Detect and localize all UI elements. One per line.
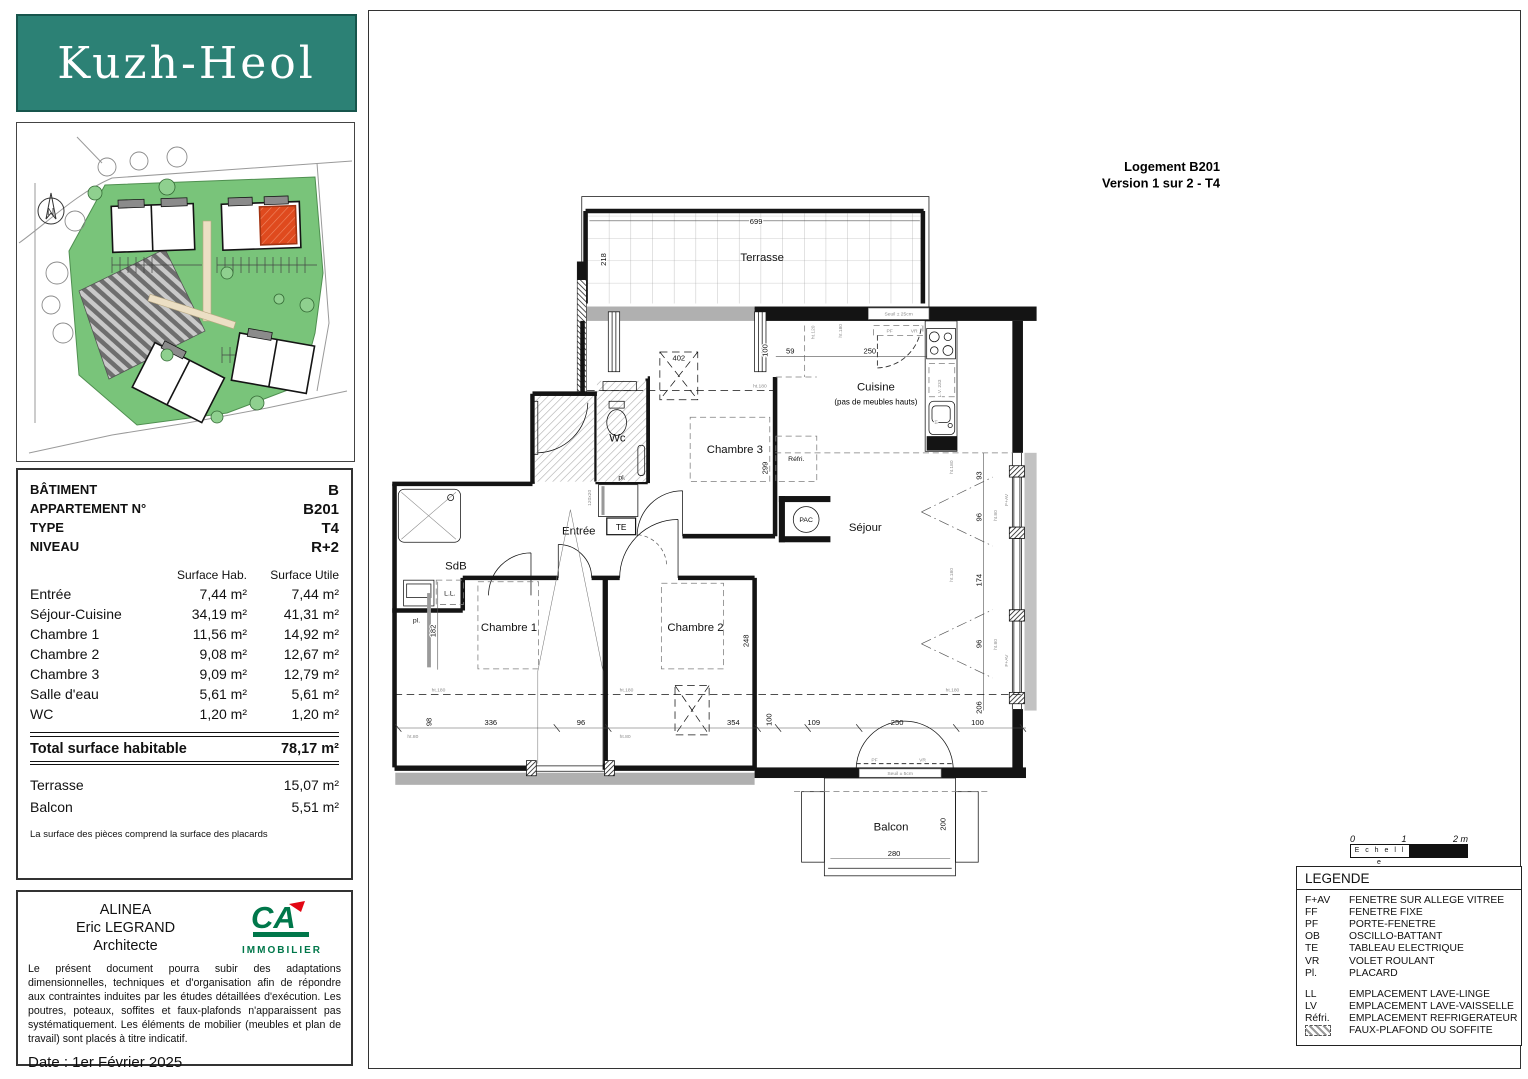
svg-text:ht.80: ht.80: [407, 734, 418, 740]
surface-row: Chambre 39,09 m²12,79 m²: [30, 666, 339, 682]
exterior-band: [1024, 453, 1036, 711]
room-label-chambre1: Chambre 1: [481, 622, 537, 634]
surface-row: Chambre 29,08 m²12,67 m²: [30, 646, 339, 662]
surface-row: Entrée7,44 m²7,44 m²: [30, 586, 339, 602]
dim-b100a: 100: [764, 713, 773, 726]
site-unit-highlight: [259, 206, 296, 245]
svg-text:F+AV: F+AV: [1004, 493, 1010, 506]
scale-bar: 0 1 2 m E c h e l l e: [1350, 834, 1468, 858]
legend-item: Pl.PLACARD: [1297, 967, 1521, 979]
annex-row: Balcon5,51 m²: [30, 799, 339, 815]
refri-label: Réfri.: [788, 456, 804, 463]
dim-182: 182: [428, 625, 437, 638]
dim-terrasse-depth: 218: [599, 253, 608, 266]
site-building-1: [111, 198, 195, 253]
dim-ch3-depth: 299: [760, 462, 769, 475]
svg-text:ht.120: ht.120: [810, 325, 816, 339]
disclaimer-text: Le présent document pourra subir des ada…: [28, 963, 341, 1047]
sheet-subtitle: Version 1 sur 2 - T4: [1102, 176, 1221, 191]
dim-right-93: 93: [974, 471, 983, 479]
surface-header: Surface Hab. Surface Utile: [30, 568, 339, 582]
ll-label: L.L.: [444, 590, 455, 597]
site-plan-drawing: N: [17, 123, 352, 459]
site-building-2-highlight: [221, 196, 301, 251]
dim-ch2-248: 248: [742, 634, 751, 647]
dim-right-96b: 96: [974, 640, 983, 648]
dim-right-174: 174: [974, 574, 983, 587]
legend-item: TETABLEAU ELECTRIQUE: [1297, 942, 1521, 954]
total-surface-row: Total surface habitable 78,17 m²: [30, 741, 339, 757]
room-label-sejour: Séjour: [849, 522, 882, 534]
dim-terrasse-width: 699: [750, 217, 763, 226]
lv-label: L.V. 233: [937, 379, 943, 397]
room-label-balcon: Balcon: [874, 821, 909, 833]
plan-date: Date : 1er Février 2025: [28, 1054, 341, 1071]
pac-label: PAC: [799, 517, 813, 524]
placard-label: pl.: [618, 474, 625, 481]
site-plan: N: [16, 122, 355, 462]
seuil-terrasse-note: Seuil ± 25cm: [884, 312, 912, 318]
legend-item: F+AVFENETRE SUR ALLEGE VITREE: [1297, 894, 1521, 906]
legend-item: OBOSCILLO-BATTANT: [1297, 930, 1521, 942]
dim-balcon-depth: 200: [939, 818, 948, 831]
placard-label-2: pl.: [413, 618, 420, 625]
svg-text:ht.180: ht.180: [949, 460, 955, 474]
room-label-terrasse: Terrasse: [740, 252, 784, 264]
legend: LEGENDE F+AVFENETRE SUR ALLEGE VITREE FF…: [1296, 866, 1522, 1046]
svg-text:ht.80: ht.80: [620, 734, 631, 740]
info-field: NIVEAUR+2: [30, 539, 339, 556]
unit-info-card: BÂTIMENTB APPARTEMENT N°B201 TYPET4 NIVE…: [16, 468, 353, 880]
legend-item: FAUX-PLAFOND OU SOFFITE: [1297, 1024, 1521, 1039]
svg-text:ht.180: ht.180: [753, 384, 767, 390]
room-label-cuisine: Cuisine: [857, 382, 895, 394]
svg-text:VR: VR: [911, 328, 918, 334]
seuil-balcon-note: Seuil ± 5cm: [887, 771, 913, 777]
soffit-hatch-icon: [1305, 1025, 1331, 1036]
svg-text:ht.80: ht.80: [993, 510, 999, 521]
te-label: TE: [616, 522, 627, 532]
surface-row: Salle d'eau5,61 m²5,61 m²: [30, 686, 339, 702]
dim-b96: 96: [577, 718, 585, 727]
legend-item: LVEMPLACEMENT LAVE-VAISSELLE: [1297, 1000, 1521, 1012]
dim-right-206: 206: [974, 701, 983, 714]
architect-card: ALINEA Eric LEGRAND Architecte CA IMMOBI…: [16, 890, 353, 1066]
legend-item: Réfri.EMPLACEMENT REFRIGERATEUR: [1297, 1012, 1521, 1024]
svg-text:PF: PF: [871, 757, 877, 763]
svg-text:N: N: [47, 207, 54, 218]
dim-right-96a: 96: [974, 513, 983, 521]
svg-text:ht.180: ht.180: [620, 688, 634, 694]
legend-item: LLEMPLACEMENT LAVE-LINGE: [1297, 988, 1521, 1000]
ca-immobilier-logo: CA IMMOBILIER: [223, 900, 341, 956]
soffit-hatch-wc: [597, 381, 646, 482]
dim-soffit: 402: [672, 353, 685, 362]
surface-row: WC1,20 m²1,20 m²: [30, 706, 339, 722]
dim-b98: 98: [425, 718, 434, 726]
brand-logo-text: Kuzh-Heol: [57, 38, 316, 89]
wall-band-gray: [580, 307, 754, 321]
room-label-wc: Wc: [609, 432, 626, 444]
svg-text:VR: VR: [919, 757, 926, 763]
svg-text:ht.180: ht.180: [949, 568, 955, 582]
svg-text:ht.80: ht.80: [993, 639, 999, 650]
legend-item: PFPORTE-FENETRE: [1297, 918, 1521, 930]
sheet-title: Logement B201: [1124, 159, 1220, 174]
surface-footnote: La surface des pièces comprend la surfac…: [30, 829, 339, 840]
dim-k100: 100: [760, 344, 769, 357]
legend-item: VRVOLET ROULANT: [1297, 954, 1521, 966]
surface-row: Chambre 111,56 m²14,92 m²: [30, 626, 339, 642]
dim-b100b: 100: [971, 718, 984, 727]
dim-b354: 354: [727, 718, 740, 727]
scale-label: E c h e l l e: [1351, 845, 1409, 857]
dim-k250: 250: [864, 347, 877, 356]
svg-text:F+AV: F+AV: [1004, 654, 1010, 667]
legend-item: FFFENETRE FIXE: [1297, 906, 1521, 918]
info-field: APPARTEMENT N°B201: [30, 501, 339, 518]
svg-text:CA: CA: [251, 900, 296, 935]
tri-label: tri: [933, 420, 939, 424]
soffit-hatch-vestibule: [535, 396, 594, 482]
dim-b336: 336: [484, 718, 497, 727]
info-field: TYPET4: [30, 520, 339, 537]
dim-b109: 109: [807, 718, 820, 727]
dim-k59: 59: [786, 347, 794, 356]
svg-text:PF: PF: [887, 328, 893, 334]
dim-balcon-width: 280: [888, 849, 901, 858]
annex-row: Terrasse15,07 m²: [30, 777, 339, 793]
svg-text:ht.180: ht.180: [946, 688, 960, 694]
svg-text:120x20: 120x20: [587, 490, 593, 506]
cuisine-note: (pas de meubles hauts): [834, 397, 917, 406]
north-arrow-icon: N: [38, 193, 64, 224]
svg-text:ht.180: ht.180: [432, 688, 446, 694]
ca-immobilier-label: IMMOBILIER: [223, 945, 341, 956]
legend-title: LEGENDE: [1297, 867, 1521, 890]
room-label-chambre2: Chambre 2: [667, 622, 723, 634]
brand-banner: Kuzh-Heol: [16, 14, 357, 112]
info-field: BÂTIMENTB: [30, 482, 339, 499]
architect-names: ALINEA Eric LEGRAND Architecte: [28, 901, 223, 955]
svg-text:ht.180: ht.180: [838, 324, 844, 338]
room-label-chambre3: Chambre 3: [707, 444, 763, 456]
room-label-sdb: SdB: [445, 561, 466, 573]
surface-row: Séjour-Cuisine34,19 m²41,31 m²: [30, 606, 339, 622]
